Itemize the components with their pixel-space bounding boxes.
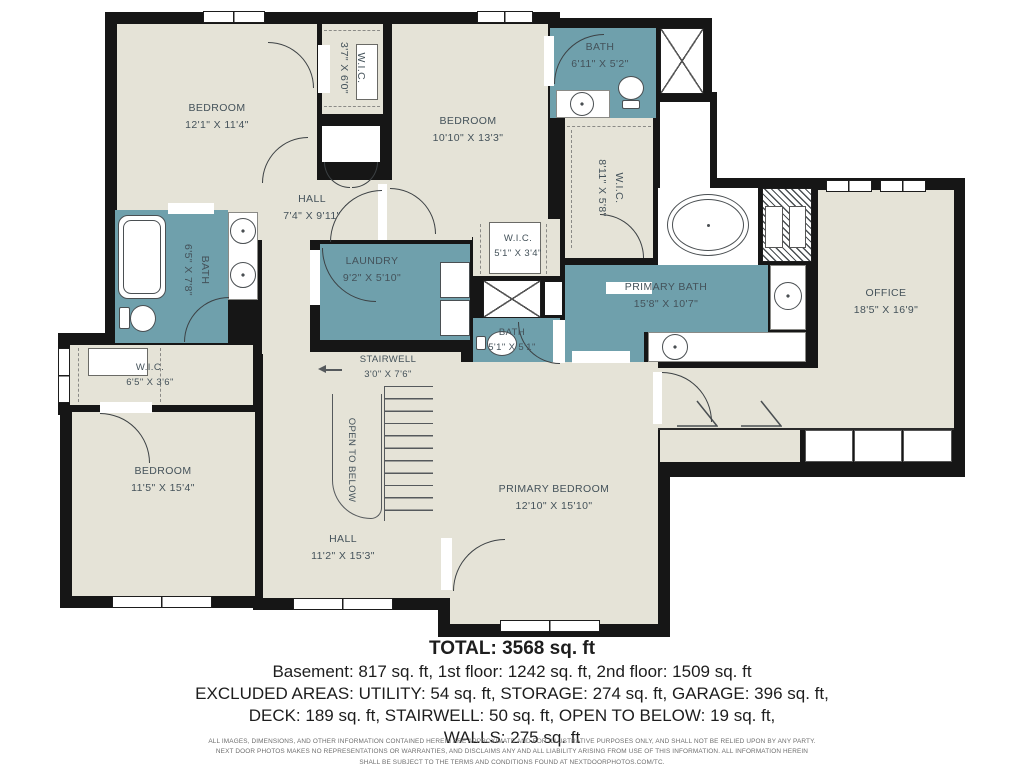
room-dims: 6'5" X 3'6"	[126, 375, 174, 390]
label-hall-bottom: HALL 11'2" X 15'3"	[283, 528, 403, 568]
door-leaf	[441, 538, 452, 590]
room-name: LAUNDRY	[346, 253, 399, 270]
closet-rod-dash	[567, 126, 651, 127]
room-office-alcove	[660, 430, 800, 462]
window	[203, 11, 265, 23]
room-dims: 3'0" X 7'6"	[364, 367, 412, 382]
window	[477, 11, 533, 23]
window	[58, 348, 70, 403]
room-bath-nook	[660, 102, 710, 194]
room-dims: 10'10" X 13'3"	[433, 130, 504, 147]
window	[826, 180, 872, 192]
floor-areas: Basement: 817 sq. ft, 1st floor: 1242 sq…	[0, 661, 1024, 683]
wall-opening	[168, 203, 214, 214]
window	[293, 598, 393, 610]
room-name: PRIMARY BATH	[625, 279, 707, 296]
room-name: STAIRWELL	[360, 352, 417, 367]
room-dims: 11'5" X 15'4"	[131, 480, 195, 497]
oval-tub-icon	[667, 194, 749, 256]
label-stairwell: STAIRWELL 3'0" X 7'6"	[338, 350, 438, 384]
excluded-areas-1: EXCLUDED AREAS: UTILITY: 54 sq. ft, STOR…	[0, 683, 1024, 705]
room-dims: 9'2" X 5'10"	[343, 270, 401, 287]
room-name: W.I.C.	[352, 53, 369, 84]
room-name: W.I.C.	[504, 231, 532, 246]
total-area: TOTAL: 3568 sq. ft	[0, 637, 1024, 661]
toilet-tank-icon	[622, 100, 640, 109]
door-leaf	[653, 372, 662, 424]
window	[880, 180, 926, 192]
area-summary: TOTAL: 3568 sq. ft Basement: 817 sq. ft,…	[0, 637, 1024, 749]
label-bedroom-bottom-left: BEDROOM 11'5" X 15'4"	[103, 458, 223, 502]
door-leaf	[100, 402, 152, 413]
shower-bench	[765, 206, 783, 248]
label-bath-center: BATH 5'1" X 5'1"	[462, 322, 562, 358]
room-name: BATH	[586, 39, 615, 56]
sink-icon	[570, 92, 594, 116]
room-name: BEDROOM	[134, 463, 191, 480]
room-hall-leg	[262, 240, 310, 354]
stair-direction-arrow-icon	[318, 365, 326, 373]
room-name: OFFICE	[866, 285, 907, 302]
room-name: W.I.C.	[610, 173, 627, 204]
window	[112, 596, 212, 608]
excluded-areas-2: DECK: 189 sq. ft, STAIRWELL: 50 sq. ft, …	[0, 705, 1024, 727]
label-bedroom-top-left: BEDROOM 12'1" X 11'4"	[157, 95, 277, 139]
room-dims: 3'7" X 6'0"	[335, 42, 352, 94]
room-dims: 12'1" X 11'4"	[185, 117, 249, 134]
label-open-to-below: OPEN TO BELOW	[299, 431, 403, 489]
washer-icon	[440, 262, 470, 298]
room-name: BATH	[196, 256, 213, 285]
room-dims: 6'11" X 5'2"	[571, 56, 629, 73]
label-primary-bath: PRIMARY BATH 15'8" X 10'7"	[596, 276, 736, 316]
room-name: BEDROOM	[188, 100, 245, 117]
label-wic-bottom-left: W.I.C. 6'5" X 3'6"	[90, 356, 210, 394]
room-dims: 7'4" X 9'11"	[283, 208, 341, 225]
room-dims: 18'5" X 16'9"	[854, 302, 919, 319]
attic-marker-icon	[740, 400, 782, 427]
label-wic-center: W.I.C. 5'1" X 3'4"	[468, 228, 568, 264]
label-wic-top-left: W.I.C. 3'7" X 6'0"	[312, 28, 392, 108]
room-name: OPEN TO BELOW	[343, 418, 358, 503]
room-dims: 12'10" X 15'10"	[515, 498, 592, 515]
shower-icon	[483, 280, 541, 318]
disclaimer: ALL IMAGES, DIMENSIONS, AND OTHER INFORM…	[0, 737, 1024, 768]
door-opening	[572, 351, 630, 363]
room-name: W.I.C.	[136, 360, 164, 375]
room-dims: 15'8" X 10'7"	[634, 296, 699, 313]
label-laundry: LAUNDRY 9'2" X 5'10"	[312, 250, 432, 290]
room-name: PRIMARY BEDROOM	[499, 481, 610, 498]
room-name: BATH	[499, 325, 525, 340]
label-bath-top-right: BATH 6'11" X 5'2"	[540, 36, 660, 76]
window	[500, 620, 600, 632]
sink-icon	[662, 334, 688, 360]
label-office: OFFICE 18'5" X 16'9"	[816, 280, 956, 324]
office-builtin	[805, 430, 853, 462]
room-shower-nook	[545, 282, 562, 315]
room-dims: 5'1" X 3'4"	[494, 246, 542, 261]
closet-rod-dash	[78, 348, 79, 402]
room-dims: 11'2" X 15'3"	[311, 548, 375, 565]
label-bath-left: BATH 6'5" X 7'8"	[148, 224, 244, 316]
shower-icon	[660, 28, 704, 94]
room-name: HALL	[298, 191, 326, 208]
office-builtin	[903, 430, 952, 462]
floor-plan-page: BEDROOM 12'1" X 11'4" W.I.C. 3'7" X 6'0"…	[0, 0, 1024, 768]
disclaimer-line: SHALL BE SUBJECT TO THE TERMS AND CONDIT…	[0, 758, 1024, 768]
room-name: HALL	[329, 531, 357, 548]
label-bedroom-top-middle: BEDROOM 10'10" X 13'3"	[408, 108, 528, 152]
disclaimer-line: NEXT DOOR PHOTOS MAKES NO REPRESENTATION…	[0, 747, 1024, 757]
toilet-icon	[618, 76, 644, 100]
toilet-tank-icon	[119, 307, 130, 329]
room-dims: 5'1" X 5'1"	[488, 340, 536, 355]
office-builtin	[854, 430, 902, 462]
label-primary-bedroom: PRIMARY BEDROOM 12'10" X 15'10"	[474, 476, 634, 520]
room-dims: 6'5" X 7'8"	[179, 244, 196, 296]
room-dims: 8'11" X 5'8"	[593, 159, 610, 217]
room-name: BEDROOM	[439, 113, 496, 130]
shower-bench	[789, 206, 806, 248]
label-wic-right: W.I.C. 8'11" X 5'8"	[560, 143, 660, 233]
sink-icon	[774, 282, 802, 310]
room-closet-top	[322, 126, 380, 162]
disclaimer-line: ALL IMAGES, DIMENSIONS, AND OTHER INFORM…	[0, 737, 1024, 747]
label-hall-top: HALL 7'4" X 9'11"	[252, 188, 372, 228]
